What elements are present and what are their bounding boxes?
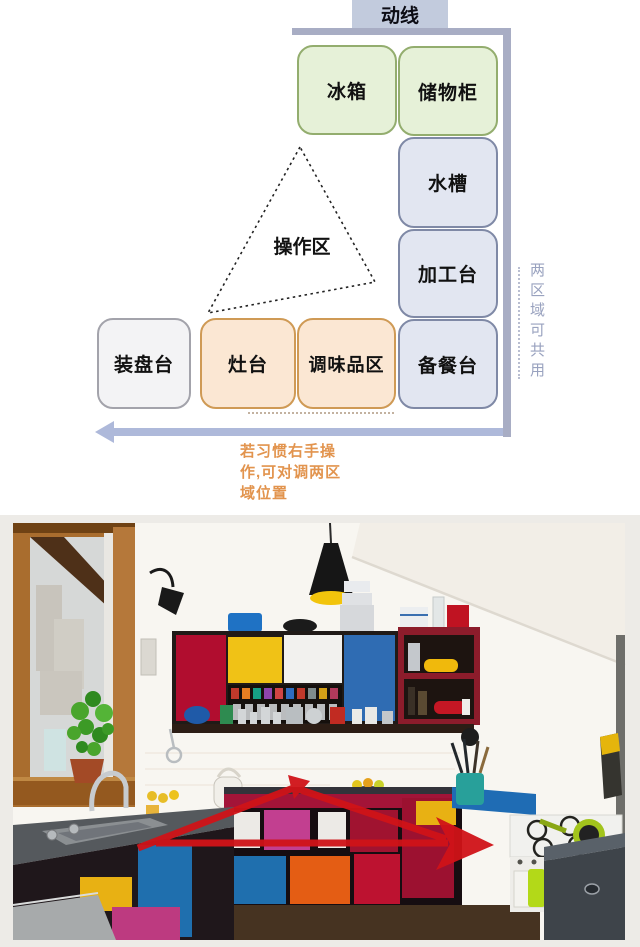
page: 动线 冰箱 储物柜 水槽 加工台 备餐台 装盘台 灶台 调味品区 — [0, 0, 640, 947]
flow-arrow-head — [95, 421, 114, 443]
node-processing: 加工台 — [398, 229, 498, 318]
node-fridge-label: 冰箱 — [327, 77, 367, 104]
wall-sign — [141, 639, 156, 675]
flow-header-label: 动线 — [352, 0, 448, 28]
node-storage: 储物柜 — [398, 46, 498, 136]
cabinet-door-white — [284, 635, 342, 683]
kitchen-photo — [0, 515, 640, 947]
node-stove-label: 灶台 — [228, 350, 268, 377]
node-stove: 灶台 — [200, 318, 296, 409]
node-seasoning: 调味品区 — [297, 318, 396, 409]
swap-zone-dotted-line — [248, 412, 394, 414]
cabinet-door-yellow — [228, 637, 282, 683]
node-sink: 水槽 — [398, 137, 498, 228]
node-sink-label: 水槽 — [428, 169, 468, 196]
node-storage-label: 储物柜 — [418, 78, 478, 105]
right-counter — [544, 847, 625, 940]
node-processing-label: 加工台 — [418, 260, 478, 287]
node-prep-label: 备餐台 — [418, 351, 478, 378]
shared-zone-dotted-line — [518, 267, 520, 379]
shared-zone-note: 两区域可共用 — [526, 262, 547, 407]
node-plating-label: 装盘台 — [114, 350, 174, 377]
work-triangle-shape — [190, 135, 390, 325]
kitchen-photo-svg — [0, 515, 640, 947]
node-prep: 备餐台 — [398, 319, 498, 409]
caption-line-2: 作,可对调两区 — [240, 462, 370, 483]
green-towel — [528, 869, 545, 907]
right-wall-bar — [503, 28, 511, 437]
top-wall-bar — [292, 28, 504, 35]
node-fridge: 冰箱 — [297, 45, 397, 135]
node-plating: 装盘台 — [97, 318, 191, 409]
floor — [224, 905, 540, 940]
caption: 若习惯右手操 作,可对调两区 域位置 — [240, 441, 370, 504]
flow-arrow-bar — [114, 428, 503, 436]
maroon-shelf-unit — [398, 597, 480, 725]
caption-line-3: 域位置 — [240, 483, 370, 504]
window-sill — [13, 781, 135, 805]
caption-line-1: 若习惯右手操 — [240, 441, 370, 462]
node-seasoning-label: 调味品区 — [309, 351, 385, 377]
work-triangle-label: 操作区 — [262, 232, 342, 259]
